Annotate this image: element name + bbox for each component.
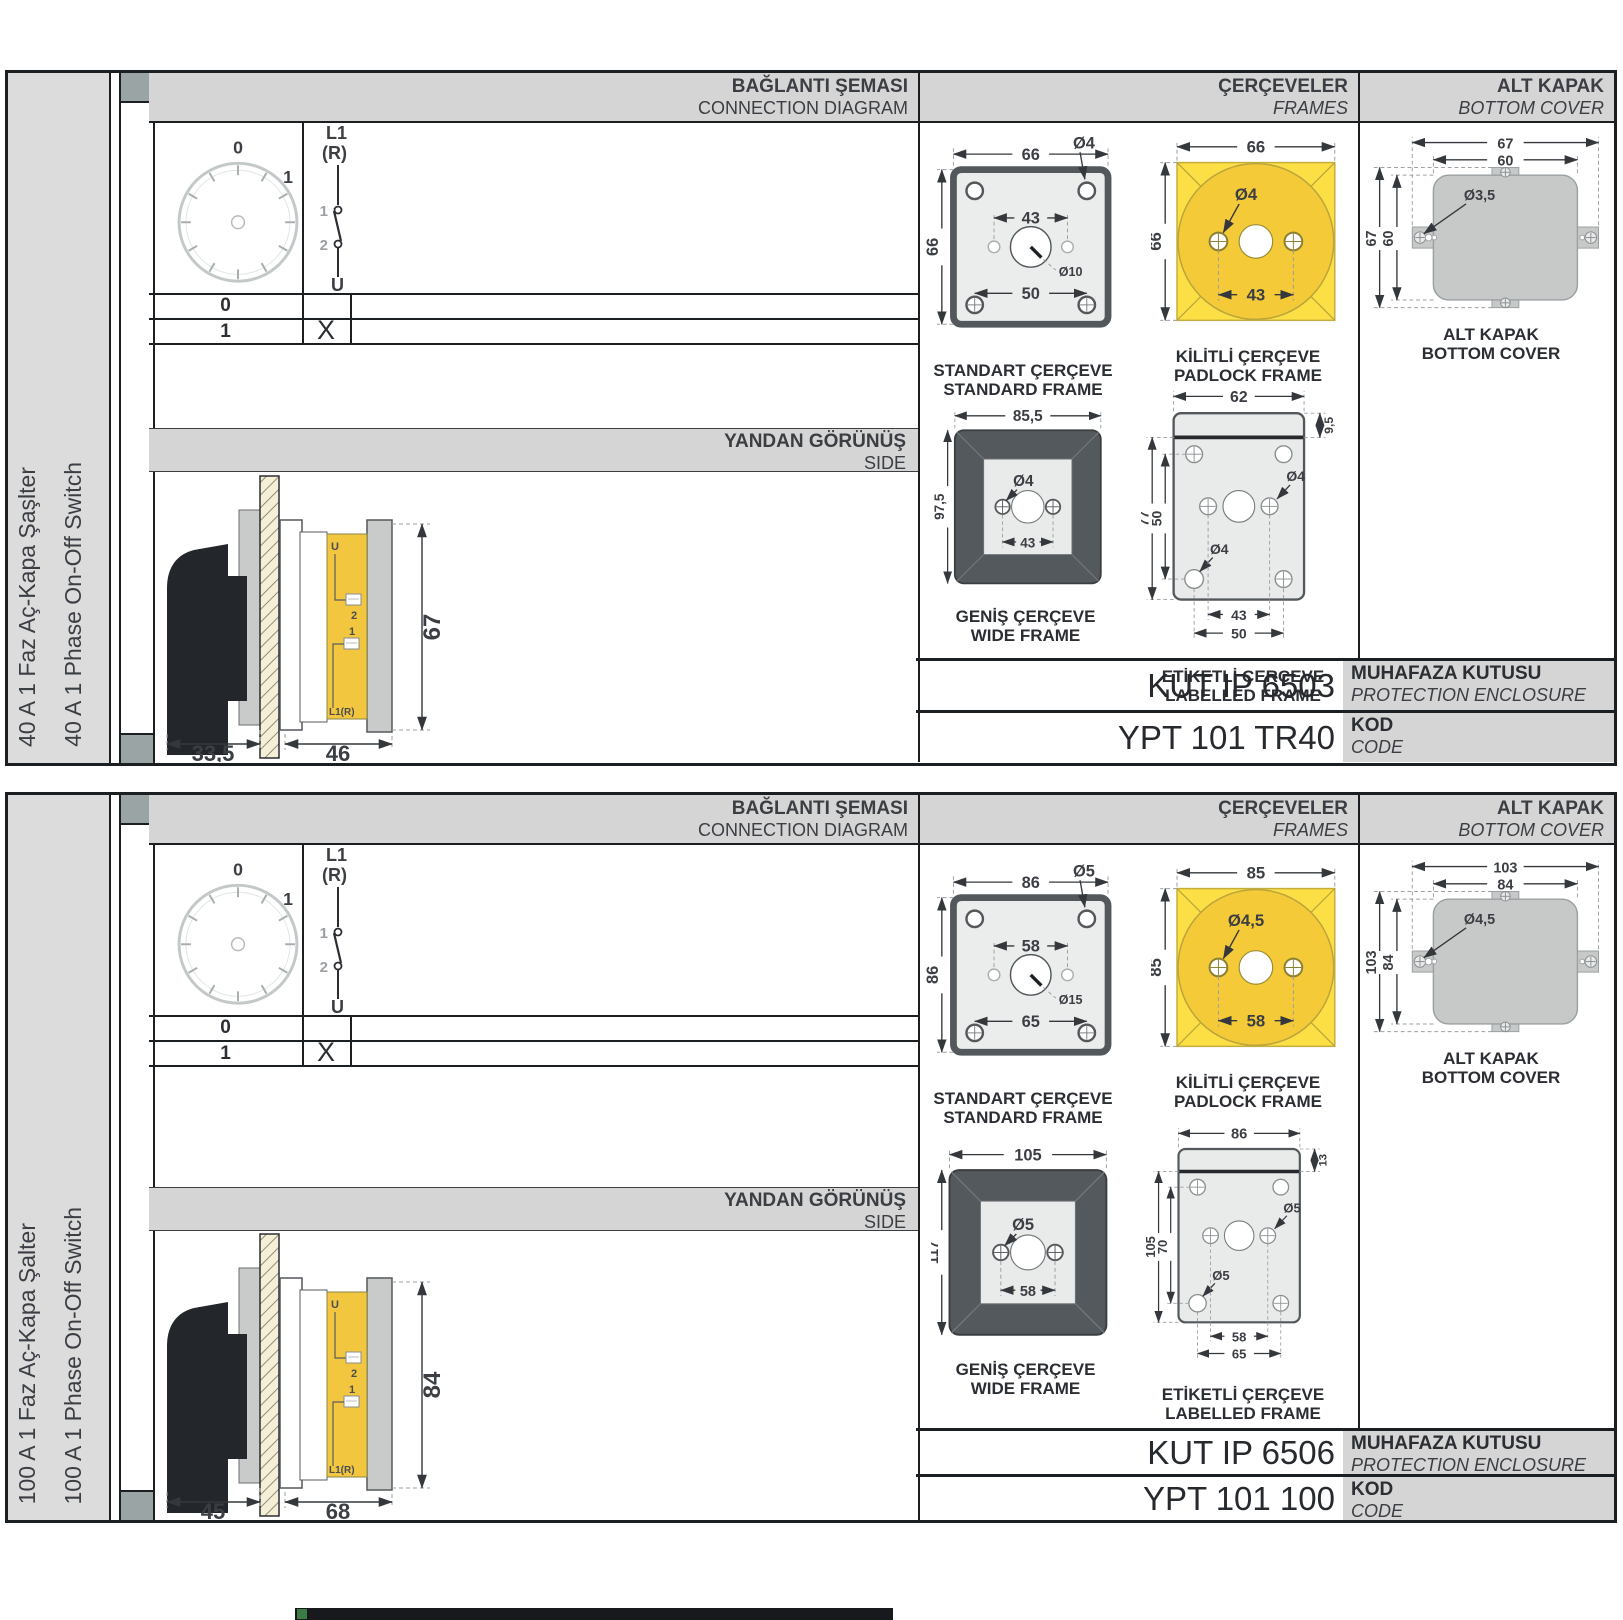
dim-hole-span: 58	[1246, 1012, 1265, 1031]
contact-diagram: L1 (R) 1 2 U	[308, 847, 368, 1015]
dim-screw-a: Ø5	[1283, 1200, 1300, 1215]
dim-span-b: 65	[1231, 1347, 1245, 1362]
dim-screw: Ø4	[1234, 185, 1257, 204]
dim-shaft: Ø10	[1058, 265, 1082, 279]
header-frames-tr: ÇERÇEVELER	[920, 798, 1348, 820]
dim-shaft: Ø15	[1058, 993, 1082, 1007]
frame-shape	[1178, 1149, 1299, 1322]
padlock-frame-block: 85 85 Ø4,5 58 KİLİTLİ ÇERÇEVE PADLOCK FR…	[1148, 859, 1348, 1111]
dim-screw: Ø4,5	[1227, 911, 1263, 930]
caption-tr: ETİKETLİ ÇERÇEVE	[1138, 1385, 1348, 1404]
dim-width: 85	[1246, 864, 1265, 883]
code-label-en: CODE	[1351, 737, 1614, 757]
caption-tr: ALT KAPAK	[1366, 1049, 1616, 1068]
side-terminal-1: 1	[349, 1384, 355, 1396]
caption-en: PADLOCK FRAME	[1148, 1092, 1348, 1111]
wide-frame-block: 105 117 Ø5 58 GENİŞ ÇERÇEVE WIDE FRAME	[928, 1143, 1123, 1398]
dim-width: 85,5	[1012, 408, 1042, 425]
side-view-header: YANDAN GÖRÜNÜŞ SIDE	[149, 1187, 918, 1231]
table-mark-x: X	[302, 318, 350, 343]
dim-outer-height: 67	[1366, 231, 1380, 247]
table-row-1: 1	[149, 320, 302, 344]
caption-tr: GENİŞ ÇERÇEVE	[928, 1360, 1123, 1379]
dim-inner-width: 84	[1497, 878, 1513, 894]
wide-frame-block: 85,5 97,5 Ø4 43 GENİŞ ÇERÇEVE WIDE FRAME	[928, 405, 1123, 645]
header-frames-tr: ÇERÇEVELER	[920, 76, 1348, 98]
handle	[167, 1302, 228, 1513]
side-height-dim: 84	[419, 1371, 446, 1398]
side-view-drawing: U 2 1 L1(R) 67 33,5 46	[130, 472, 460, 762]
dim-width: 66	[1021, 146, 1039, 164]
side-view-drawing: U 2 1 L1(R) 84 45 68	[130, 1230, 460, 1520]
product-code: YPT 101 TR40	[920, 713, 1343, 762]
dial-drawing: 0 1	[158, 126, 318, 291]
header-connection-diagram: BAĞLANTI ŞEMASI CONNECTION DIAGRAM	[149, 73, 918, 123]
caption-tr: STANDART ÇERÇEVE	[923, 361, 1123, 380]
contact-wires	[334, 165, 341, 277]
dim-outer-width: 103	[1493, 860, 1517, 876]
dim-width: 105	[1014, 1146, 1041, 1164]
dim-height: 66	[1151, 232, 1165, 251]
divider-frames-cover	[1358, 845, 1360, 1428]
header-bottom-cover: ALT KAPAK BOTTOM COVER	[1358, 73, 1614, 123]
dim-outer-height: 103	[1366, 951, 1380, 975]
labelled-frame-drawing: 62 9,5 77 50 Ø4 Ø4 43	[1141, 385, 1346, 665]
header-frames-en: FRAMES	[920, 820, 1348, 840]
table-row-0: 0	[149, 294, 302, 318]
dim-inner-height: 84	[1381, 955, 1397, 971]
caption-tr: KİLİTLİ ÇERÇEVE	[1148, 1073, 1348, 1092]
table-divider	[302, 845, 304, 1067]
contact-diagram: L1 (R) 1 2 U	[308, 125, 368, 293]
dim-width: 62	[1230, 389, 1248, 406]
switch-body	[167, 1234, 392, 1516]
side-terminal-2: 2	[351, 610, 357, 622]
table-divider	[350, 293, 352, 345]
contact-label-1: 1	[320, 203, 328, 220]
side-terminal-l1r: L1(R)	[329, 707, 355, 718]
table-row-1: 1	[149, 1042, 302, 1066]
side-header-en: SIDE	[149, 1212, 906, 1232]
terminal-l1: L1	[326, 125, 347, 143]
contact-point-1	[335, 207, 342, 214]
code-label: KOD CODE	[1343, 1477, 1614, 1520]
contact-point-1	[335, 929, 342, 936]
wide-frame-drawing: 105 117 Ø5 58	[931, 1143, 1121, 1358]
header-connection-tr: BAĞLANTI ŞEMASI	[149, 76, 908, 98]
dim-screw-b: Ø4	[1209, 541, 1228, 557]
code-label-tr: KOD	[1351, 1479, 1614, 1501]
product-section-100a: 100 A 1 Faz Aç-Kapa Şalter 100 A 1 Phase…	[5, 792, 1617, 1523]
header-bottom-cover: ALT KAPAK BOTTOM COVER	[1358, 795, 1614, 845]
dim-strip: 13	[1317, 1154, 1329, 1167]
dim-screw: Ø5	[1072, 862, 1094, 880]
terminal-l1: L1	[326, 847, 347, 865]
header-connection-diagram: BAĞLANTI ŞEMASI CONNECTION DIAGRAM	[149, 795, 918, 845]
caption-tr: GENİŞ ÇERÇEVE	[928, 607, 1123, 626]
standard-frame-block: 66 Ø4 66 43 Ø10 50 STANDART ÇERÇEVE STAN…	[923, 129, 1123, 399]
dim-width: 86	[1021, 874, 1039, 892]
terminal-u: U	[331, 275, 344, 293]
caption-tr: ALT KAPAK	[1366, 325, 1616, 344]
footer-accent	[297, 1609, 307, 1619]
section-sidebar: 40 A 1 Faz Aç-Kapa Şaşlter 40 A 1 Phase …	[8, 73, 111, 763]
enclosure-code: KUT IP 6506	[920, 1431, 1343, 1474]
caption-en: PADLOCK FRAME	[1148, 366, 1348, 385]
product-title-tr: 100 A 1 Faz Aç-Kapa Şalter	[14, 1223, 41, 1504]
bottom-cover-block: 103 84 103 84 Ø4,5 ALT KAPAK BOTTOM COVE…	[1366, 855, 1616, 1087]
header-cover-en: BOTTOM COVER	[1360, 820, 1604, 840]
dim-width: 86	[1230, 1127, 1246, 1143]
code-label-en: CODE	[1351, 1501, 1614, 1521]
side-terminal-2: 2	[351, 1368, 357, 1380]
header-cover-en: BOTTOM COVER	[1360, 98, 1604, 118]
labelled-frame-drawing: 86 13 105 70 Ø5 Ø5 58	[1146, 1123, 1341, 1383]
code-label-tr: KOD	[1351, 715, 1614, 737]
padlock-frame-drawing: 85 85 Ø4,5 58	[1151, 859, 1346, 1071]
dial-drawing: 0 1	[158, 848, 318, 1013]
header-frames-en: FRAMES	[920, 98, 1348, 118]
side-header-tr: YANDAN GÖRÜNÜŞ	[149, 1190, 906, 1212]
side-terminal-u: U	[331, 1299, 339, 1311]
enclosure-label: MUHAFAZA KUTUSU PROTECTION ENCLOSURE	[1343, 1431, 1614, 1474]
labelled-frame-block: 62 9,5 77 50 Ø4 Ø4 43	[1138, 385, 1348, 705]
dim-hole-span: 43	[1020, 535, 1036, 550]
product-title-tr: 40 A 1 Faz Aç-Kapa Şaşlter	[14, 467, 41, 747]
cover-shape	[1412, 167, 1598, 307]
product-section-40a: 40 A 1 Faz Aç-Kapa Şaşlter 40 A 1 Phase …	[5, 70, 1617, 766]
enclosure-label-tr: MUHAFAZA KUTUSU	[1351, 663, 1614, 685]
dim-inner-height: 50	[1148, 510, 1164, 526]
labelled-frame-block: 86 13 105 70 Ø5 Ø5 58	[1138, 1123, 1348, 1423]
dim-hole-span: 58	[1021, 938, 1039, 956]
enclosure-label: MUHAFAZA KUTUSU PROTECTION ENCLOSURE	[1343, 661, 1614, 710]
dim-screw-b: Ø5	[1212, 1268, 1229, 1283]
side-body-depth-dim: 68	[326, 1499, 350, 1520]
bottom-cover-block: 67 60 67 60 Ø3,5 ALT KAPAK BOTTOM COVER	[1366, 131, 1616, 363]
dial-position-0: 0	[233, 138, 243, 158]
caption-tr: STANDART ÇERÇEVE	[923, 1089, 1123, 1108]
side-terminal-1: 1	[349, 626, 355, 638]
frame-shape	[954, 430, 1100, 583]
table-mark-x: X	[302, 1040, 350, 1065]
side-view-header: YANDAN GÖRÜNÜŞ SIDE	[149, 428, 918, 472]
caption-en: WIDE FRAME	[928, 626, 1123, 645]
table-divider	[302, 123, 304, 345]
enclosure-label-en: PROTECTION ENCLOSURE	[1351, 685, 1614, 705]
side-terminal-l1r: L1(R)	[329, 1465, 355, 1476]
table-divider	[350, 1015, 352, 1067]
enclosure-label-tr: MUHAFAZA KUTUSU	[1351, 1433, 1614, 1455]
terminal-r: (R)	[322, 865, 347, 885]
dim-hole-span: 58	[1019, 1284, 1035, 1300]
product-code: YPT 101 100	[920, 1477, 1343, 1520]
padlock-frame-drawing: 66 66 Ø4 43	[1151, 133, 1346, 345]
side-handle-depth-dim: 33,5	[192, 741, 235, 762]
switch-body	[167, 476, 392, 758]
dim-height: 86	[926, 966, 942, 984]
cover-shape	[1412, 891, 1598, 1031]
enclosure-code: KUT IP 6503	[920, 661, 1343, 710]
contact-point-2	[335, 241, 342, 248]
contact-wires	[334, 887, 341, 999]
panel-wall	[260, 1234, 279, 1516]
side-header-tr: YANDAN GÖRÜNÜŞ	[149, 431, 906, 453]
caption-en: BOTTOM COVER	[1366, 1068, 1616, 1087]
product-title-en: 40 A 1 Phase On-Off Switch	[60, 462, 87, 747]
dim-screw: Ø3,5	[1464, 188, 1495, 204]
side-body-depth-dim: 46	[326, 741, 350, 762]
dial-position-1: 1	[283, 889, 293, 909]
panel-wall	[260, 476, 279, 758]
caption-en: STANDARD FRAME	[923, 1108, 1123, 1127]
enclosure-label-en: PROTECTION ENCLOSURE	[1351, 1455, 1614, 1475]
contact-label-1: 1	[320, 925, 328, 942]
dim-screw-a: Ø4	[1286, 468, 1305, 484]
standard-frame-block: 86 Ø5 86 58 Ø15 65 STANDART ÇERÇEVE STAN…	[923, 857, 1123, 1127]
side-terminal-u: U	[331, 541, 339, 553]
divider-left-frames	[918, 845, 920, 1520]
side-height-dim: 67	[419, 614, 446, 641]
dim-height: 66	[926, 238, 942, 256]
dim-bottom-span: 50	[1021, 285, 1039, 303]
dim-span-a: 43	[1231, 607, 1247, 623]
section-sidebar: 100 A 1 Faz Aç-Kapa Şalter 100 A 1 Phase…	[8, 795, 111, 1520]
code-label: KOD CODE	[1343, 713, 1614, 762]
contact-point-2	[335, 963, 342, 970]
dim-hole-span: 43	[1021, 210, 1039, 228]
dim-outer-width: 67	[1497, 136, 1513, 152]
caption-en: LABELLED FRAME	[1138, 1404, 1348, 1423]
dim-height: 85	[1151, 958, 1165, 977]
dim-bottom-span: 65	[1021, 1013, 1039, 1031]
header-connection-en: CONNECTION DIAGRAM	[149, 820, 908, 840]
catalog-page: 40 A 1 Faz Aç-Kapa Şaşlter 40 A 1 Phase …	[0, 0, 1623, 1620]
dim-inner-width: 60	[1497, 154, 1513, 170]
dim-height: 117	[931, 1241, 942, 1264]
dim-hole-span: 43	[1246, 286, 1265, 305]
header-connection-en: CONNECTION DIAGRAM	[149, 98, 908, 118]
divider-frames-cover	[1358, 123, 1360, 658]
table-row-0: 0	[149, 1016, 302, 1040]
dim-screw: Ø4,5	[1464, 912, 1495, 928]
dim-strip: 9,5	[1321, 417, 1335, 434]
dim-screw: Ø5	[1012, 1216, 1034, 1234]
handle	[167, 544, 228, 755]
frame-shape	[1173, 413, 1303, 599]
bottom-cover-drawing: 103 84 103 84 Ø4,5	[1366, 855, 1616, 1047]
standard-frame-drawing: 86 Ø5 86 58 Ø15 65	[926, 857, 1121, 1087]
dial-shape	[179, 163, 297, 281]
dim-height: 97,5	[932, 493, 947, 520]
dim-inner-height: 60	[1381, 231, 1397, 247]
contact-label-2: 2	[320, 959, 328, 976]
dim-screw: Ø4	[1013, 473, 1034, 490]
header-frames: ÇERÇEVELER FRAMES	[918, 795, 1358, 845]
header-frames: ÇERÇEVELER FRAMES	[918, 73, 1358, 123]
dim-inner-height: 70	[1155, 1240, 1170, 1254]
header-cover-tr: ALT KAPAK	[1360, 76, 1604, 98]
frame-shape	[949, 1170, 1106, 1335]
dial-shape	[179, 885, 297, 1003]
padlock-frame-block: 66 66 Ø4 43 KİLİTLİ ÇERÇEVE PADLOCK FRAM…	[1148, 133, 1348, 385]
bottom-cover-drawing: 67 60 67 60 Ø3,5	[1366, 131, 1616, 323]
terminal-u: U	[331, 997, 344, 1015]
side-handle-depth-dim: 45	[201, 1499, 225, 1520]
caption-en: BOTTOM COVER	[1366, 344, 1616, 363]
dim-screw: Ø4	[1072, 134, 1095, 152]
wide-frame-drawing: 85,5 97,5 Ø4 43	[931, 405, 1121, 605]
terminal-r: (R)	[322, 143, 347, 163]
dim-span-b: 50	[1231, 626, 1247, 642]
contact-label-2: 2	[320, 237, 328, 254]
footer-bar	[295, 1608, 893, 1620]
caption-tr: KİLİTLİ ÇERÇEVE	[1148, 347, 1348, 366]
side-header-en: SIDE	[149, 453, 906, 473]
dial-position-1: 1	[283, 167, 293, 187]
dial-position-0: 0	[233, 860, 243, 880]
product-title-en: 100 A 1 Phase On-Off Switch	[60, 1207, 87, 1504]
caption-en: WIDE FRAME	[928, 1379, 1123, 1398]
caption-en: STANDARD FRAME	[923, 380, 1123, 399]
header-connection-tr: BAĞLANTI ŞEMASI	[149, 798, 908, 820]
dim-width: 66	[1246, 138, 1265, 157]
standard-frame-drawing: 66 Ø4 66 43 Ø10 50	[926, 129, 1121, 359]
dim-span-a: 58	[1231, 1329, 1245, 1344]
header-cover-tr: ALT KAPAK	[1360, 798, 1604, 820]
